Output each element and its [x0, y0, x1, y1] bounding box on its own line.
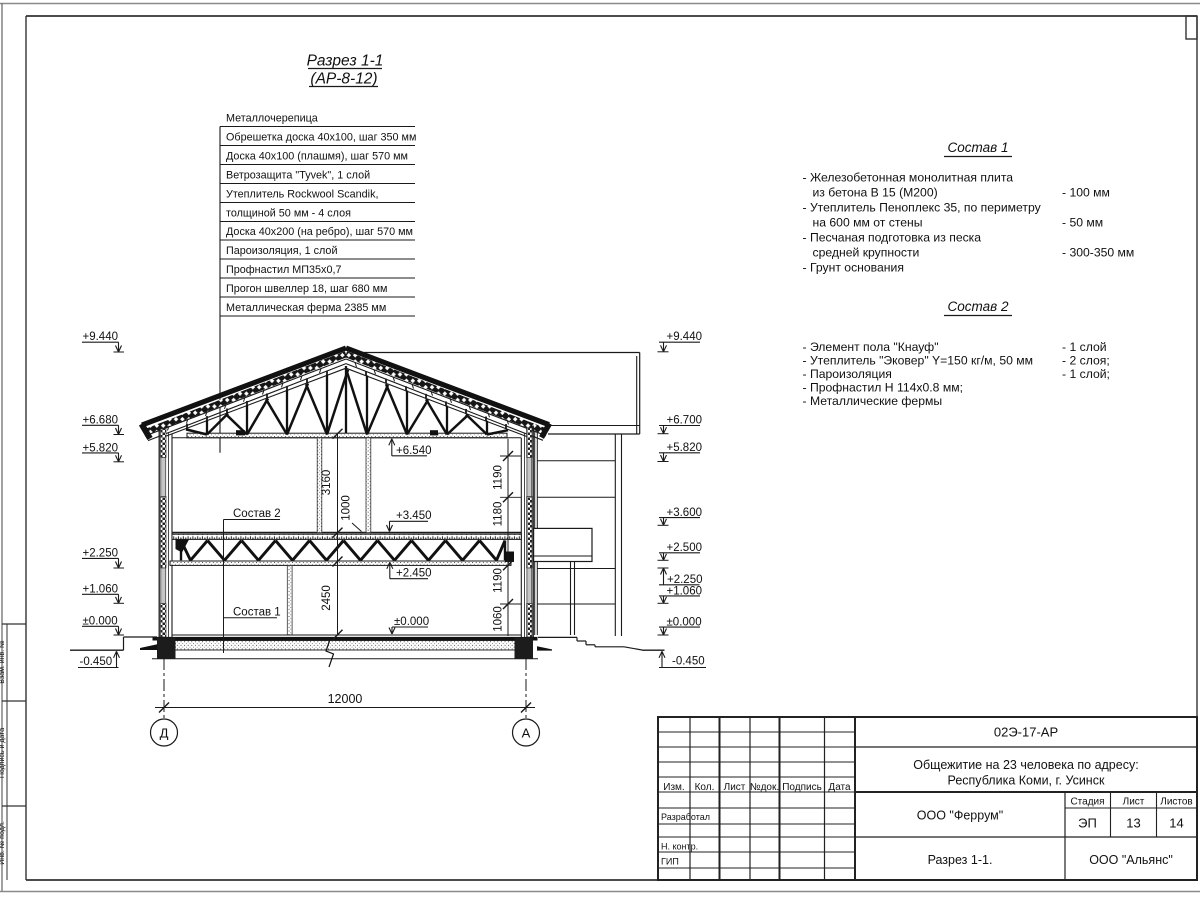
svg-text:1180: 1180 [493, 502, 505, 527]
svg-text:Доска 40х200 (на ребро), шаг 5: Доска 40х200 (на ребро), шаг 570 мм [226, 226, 413, 238]
svg-text:- Утеплитель "Эковер" Y=150 кг: - Утеплитель "Эковер" Y=150 кг/м, 50 мм [803, 354, 1034, 368]
svg-text:- 2 слоя;: - 2 слоя; [1062, 354, 1110, 368]
svg-text:±0.000: ±0.000 [83, 616, 118, 628]
svg-text:Стадия: Стадия [1070, 797, 1104, 808]
svg-text:-0.450: -0.450 [80, 656, 113, 668]
svg-text:ООО "Альянс": ООО "Альянс" [1089, 853, 1173, 867]
svg-text:средней крупности: средней крупности [813, 246, 920, 260]
svg-text:Состав 1: Состав 1 [948, 140, 1009, 155]
svg-text:1190: 1190 [493, 568, 505, 593]
svg-text:+6.680: +6.680 [83, 415, 119, 427]
svg-text:Подпись: Подпись [782, 782, 822, 793]
svg-text:Профнастил МП35х0,7: Профнастил МП35х0,7 [226, 264, 341, 276]
svg-text:Н. контр.: Н. контр. [661, 842, 698, 852]
svg-text:Ветрозащита "Tyvek", 1 слой: Ветрозащита "Tyvek", 1 слой [226, 170, 370, 182]
svg-text:Состав 2: Состав 2 [233, 508, 281, 520]
svg-text:+9.440: +9.440 [83, 331, 119, 343]
svg-text:Кол.: Кол. [695, 782, 715, 793]
svg-text:1000: 1000 [341, 495, 353, 521]
svg-text:2450: 2450 [321, 585, 333, 611]
svg-text:+9.440: +9.440 [667, 331, 703, 343]
svg-text:-0.450: -0.450 [672, 656, 705, 668]
svg-text:- Железобетонная монолитная п: - Железобетонная монолитная плита [803, 171, 1014, 185]
svg-text:Дата: Дата [828, 782, 851, 793]
svg-text:14: 14 [1169, 816, 1183, 831]
svg-text:- 100 мм: - 100 мм [1062, 186, 1110, 200]
svg-text:±0.000: ±0.000 [394, 616, 429, 628]
svg-text:+6.540: +6.540 [396, 445, 432, 457]
svg-text:- Элемент пола "Кнауф": - Элемент пола "Кнауф" [803, 340, 939, 354]
svg-text:+2.450: +2.450 [396, 568, 432, 580]
svg-text:1190: 1190 [493, 465, 505, 490]
svg-text:+1.060: +1.060 [83, 584, 119, 596]
svg-text:Листов: Листов [1160, 797, 1193, 808]
svg-text:толщиной 50 мм - 4 слоя: толщиной 50 мм - 4 слоя [226, 208, 351, 220]
svg-text:+2.250: +2.250 [83, 548, 119, 560]
svg-text:Общежитие на 23 человека по ад: Общежитие на 23 человека по адресу: [913, 758, 1138, 772]
svg-text:Разрез 1-1: Разрез 1-1 [307, 53, 384, 70]
svg-text:Подпись и дата: Подпись и дата [0, 728, 6, 778]
svg-text:из бетона В 15 (М200): из бетона В 15 (М200) [813, 186, 938, 200]
svg-text:1060: 1060 [493, 606, 505, 632]
svg-text:Взам. инв. №: Взам. инв. № [0, 640, 6, 683]
svg-text:- 1 слой;: - 1 слой; [1062, 367, 1110, 381]
svg-text:Прогон швеллер 18, шаг 680 мм: Прогон швеллер 18, шаг 680 мм [226, 283, 387, 295]
svg-text:Обрешетка доска 40х100, шаг 35: Обрешетка доска 40х100, шаг 350 мм [226, 132, 416, 144]
svg-text:Инв. № подл.: Инв. № подл. [0, 821, 6, 865]
svg-text:№док.: №док. [750, 782, 779, 793]
svg-text:Утеплитель Rockwool Scandik,: Утеплитель Rockwool Scandik, [226, 189, 378, 201]
svg-text:- Металлические фермы: - Металлические фермы [803, 394, 943, 408]
svg-text:- 300-350 мм: - 300-350 мм [1062, 246, 1134, 260]
svg-text:Состав 2: Состав 2 [948, 299, 1009, 314]
svg-text:Д: Д [160, 726, 169, 741]
svg-text:Разработал: Разработал [661, 812, 710, 822]
svg-text:13: 13 [1126, 816, 1140, 831]
svg-text:3160: 3160 [321, 470, 333, 496]
svg-text:+3.450: +3.450 [396, 510, 432, 522]
svg-text:- Профнастил Н 114х0.8 мм;: - Профнастил Н 114х0.8 мм; [803, 381, 963, 395]
svg-text:ООО "Феррум": ООО "Феррум" [917, 809, 1003, 823]
svg-text:12000: 12000 [328, 692, 363, 706]
svg-text:Металлическая ферма 2385 мм: Металлическая ферма 2385 мм [226, 302, 386, 314]
svg-text:Республика Коми, г. Усинск: Республика Коми, г. Усинск [948, 774, 1105, 788]
svg-text:Разрез 1-1.: Разрез 1-1. [928, 853, 993, 867]
svg-text:- 50 мм: - 50 мм [1062, 216, 1103, 230]
svg-text:ГИП: ГИП [661, 857, 679, 867]
svg-text:Лист: Лист [724, 782, 746, 793]
svg-text:- Утеплитель Пеноплекс 35, по: - Утеплитель Пеноплекс 35, по периметру [803, 201, 1042, 215]
svg-text:Лист: Лист [1123, 797, 1145, 808]
svg-text:+6.700: +6.700 [667, 415, 703, 427]
svg-text:Изм.: Изм. [663, 782, 684, 793]
svg-text:- Пароизоляция: - Пароизоляция [803, 367, 892, 381]
svg-text:(АР-8-12): (АР-8-12) [310, 71, 377, 88]
svg-text:- 1 слой: - 1 слой [1062, 340, 1107, 354]
svg-text:А: А [522, 726, 531, 741]
svg-text:- Песчаная подготовка из песка: - Песчаная подготовка из песка [803, 231, 982, 245]
svg-text:02Э-17-АР: 02Э-17-АР [994, 725, 1058, 740]
svg-text:Доска 40х100 (плашмя), шаг 570: Доска 40х100 (плашмя), шаг 570 мм [226, 151, 408, 163]
svg-text:на 600 мм от стены: на 600 мм от стены [813, 216, 923, 230]
svg-text:- Грунт основания: - Грунт основания [803, 261, 904, 275]
svg-text:Состав 1: Состав 1 [233, 607, 281, 619]
svg-text:Металлочерепица: Металлочерепица [226, 113, 318, 125]
svg-text:Пароизоляция, 1 слой: Пароизоляция, 1 слой [226, 245, 337, 257]
svg-text:ЭП: ЭП [1078, 816, 1097, 831]
